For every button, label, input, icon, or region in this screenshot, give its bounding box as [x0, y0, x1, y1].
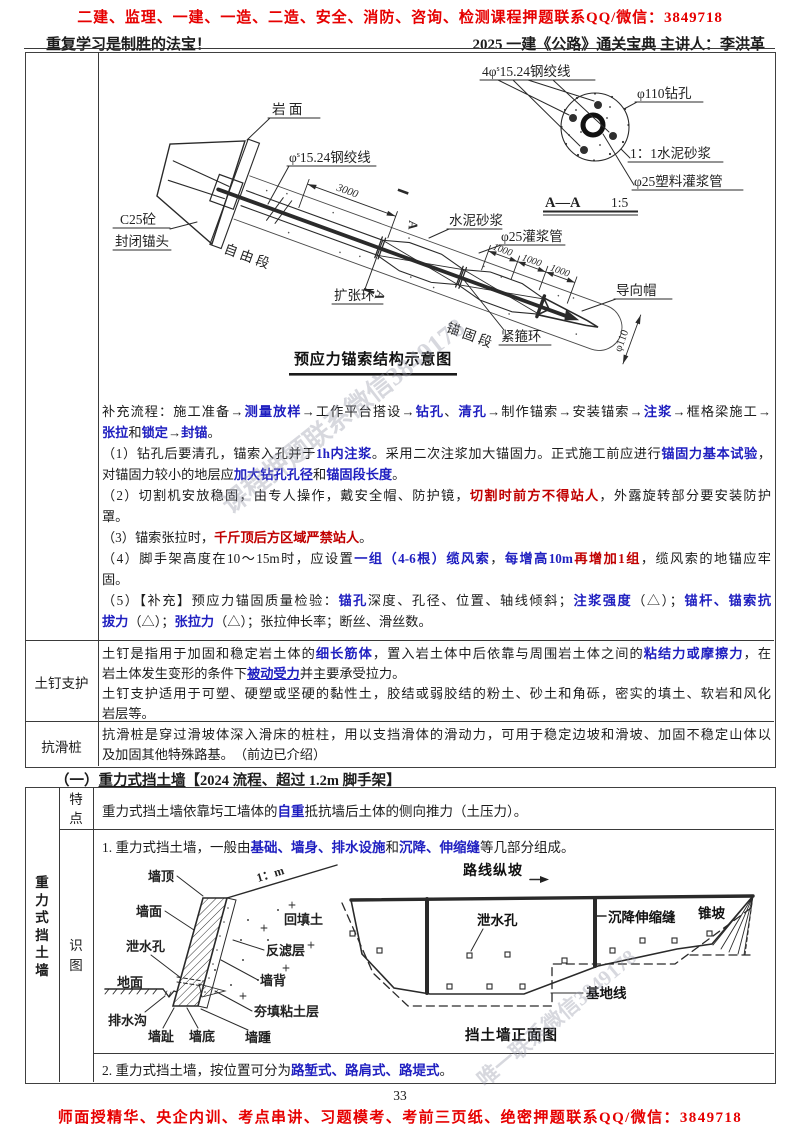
svg-text:沉降伸缩缝: 沉降伸缩缝	[608, 909, 676, 925]
svg-text:A—A: A—A	[545, 195, 581, 211]
svg-text:预应力锚索结构示意图: 预应力锚索结构示意图	[294, 350, 452, 368]
svg-text:φ110钻孔: φ110钻孔	[637, 86, 692, 101]
svg-text:路线纵坡: 路线纵坡	[463, 862, 523, 879]
svg-text:夯填粘土层: 夯填粘土层	[253, 1004, 319, 1019]
svg-text:A: A	[405, 220, 421, 231]
svg-text:反滤层: 反滤层	[266, 943, 305, 958]
svg-text:1:5: 1:5	[611, 195, 629, 210]
svg-text:墙踵: 墙踵	[245, 1030, 271, 1045]
svg-text:C25砼: C25砼	[120, 212, 157, 227]
svg-text:φ25塑料灌浆管: φ25塑料灌浆管	[634, 174, 723, 189]
svg-text:水泥砂浆: 水泥砂浆	[449, 213, 503, 228]
svg-text:φ25灌浆管: φ25灌浆管	[501, 229, 563, 244]
svg-text:墙面: 墙面	[136, 904, 162, 919]
svg-text:泄水孔: 泄水孔	[477, 912, 518, 928]
svg-text:岩 面: 岩 面	[272, 102, 302, 117]
svg-text:挡土墙正面图: 挡土墙正面图	[465, 1026, 558, 1044]
svg-text:自 由 段: 自 由 段	[222, 241, 272, 271]
svg-text:泄水孔: 泄水孔	[126, 939, 165, 954]
svg-text:墙背: 墙背	[260, 973, 286, 988]
svg-text:墙趾: 墙趾	[148, 1029, 174, 1044]
svg-text:4φs15.24钢绞线: 4φs15.24钢绞线	[482, 63, 571, 79]
svg-text:基地线: 基地线	[586, 985, 627, 1001]
svg-text:扩张环: 扩张环	[334, 288, 375, 303]
svg-text:φs15.24钢绞线: φs15.24钢绞线	[289, 149, 371, 165]
svg-text:1：1水泥砂浆: 1：1水泥砂浆	[630, 146, 711, 161]
svg-text:墙顶: 墙顶	[148, 869, 174, 884]
svg-text:导向帽: 导向帽	[616, 283, 657, 298]
svg-text:锥坡: 锥坡	[698, 905, 726, 921]
svg-text:地面: 地面	[117, 975, 143, 990]
svg-text:回填土: 回填土	[284, 912, 323, 927]
svg-text:排水沟: 排水沟	[108, 1013, 147, 1028]
svg-text:封闭锚头: 封闭锚头	[115, 234, 169, 249]
svg-text:3000: 3000	[334, 181, 360, 200]
svg-text:锚 固 段: 锚 固 段	[444, 320, 494, 350]
svg-text:紧箍环: 紧箍环	[501, 328, 542, 344]
svg-text:墙底: 墙底	[189, 1029, 215, 1044]
